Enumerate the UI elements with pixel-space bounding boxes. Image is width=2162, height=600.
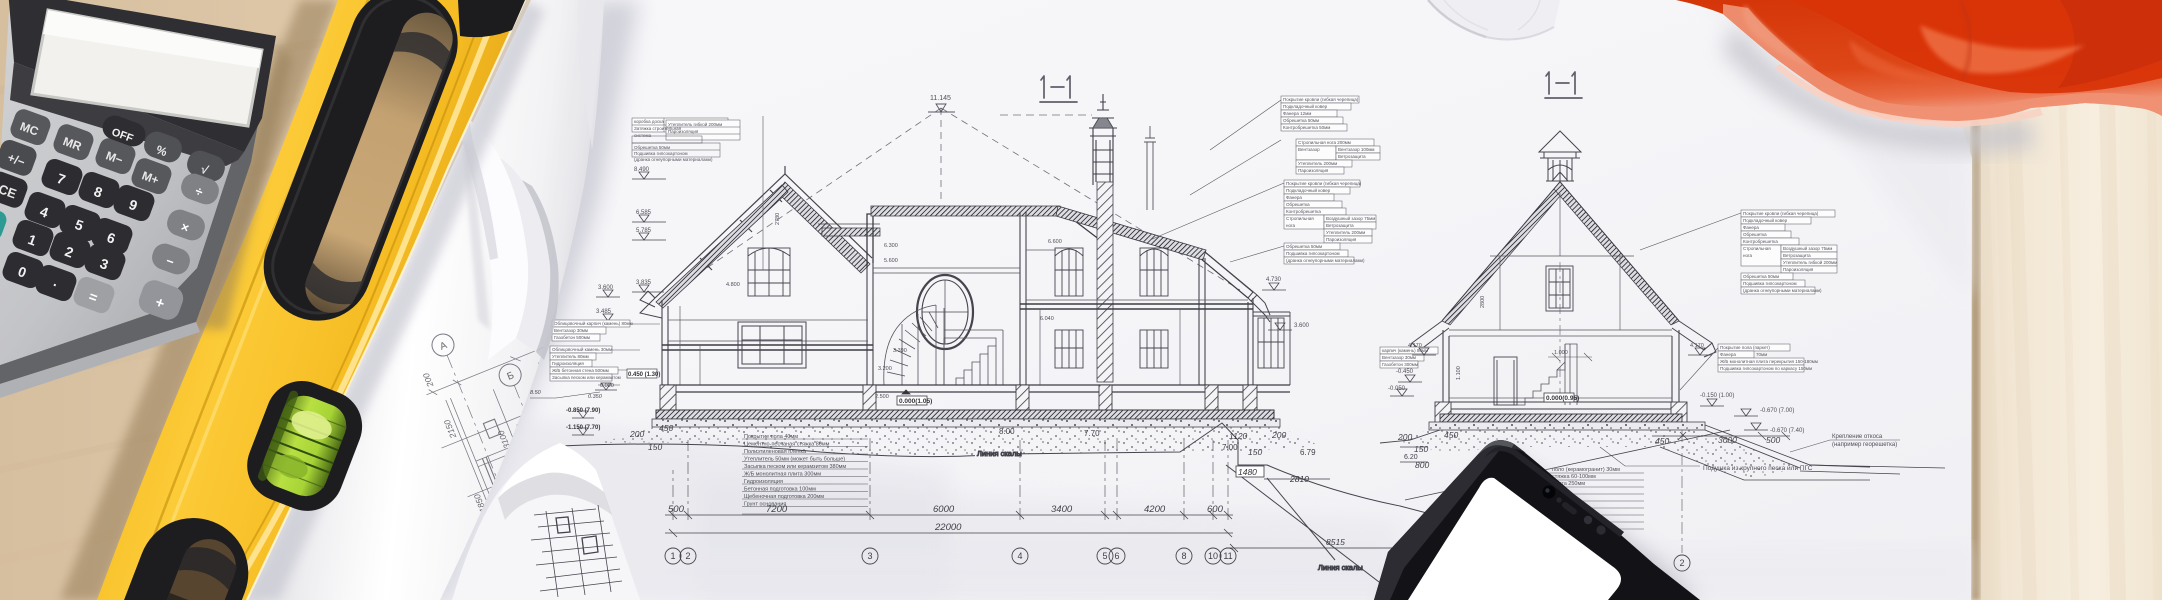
svg-text:коробка доска: коробка доска xyxy=(634,119,664,124)
svg-text:4.800: 4.800 xyxy=(726,282,740,288)
svg-text:10: 10 xyxy=(1208,551,1218,561)
svg-text:Фанера: Фанера xyxy=(1720,352,1736,357)
svg-text:Стропильная: Стропильная xyxy=(1743,246,1771,251)
svg-text:1480: 1480 xyxy=(1238,467,1257,477)
svg-text:500: 500 xyxy=(1766,435,1780,445)
svg-text:7.00: 7.00 xyxy=(1222,443,1238,452)
svg-text:Обрешетка: Обрешетка xyxy=(1743,232,1767,237)
svg-text:Утеплитель гибкой 200мм: Утеплитель гибкой 200мм xyxy=(668,121,722,127)
svg-text:8: 8 xyxy=(1181,551,1186,561)
svg-text:Подушка из крупного песка или: Подушка из крупного песка или ПГС xyxy=(1703,465,1813,472)
svg-text:Бетонная подготовка 100мм: Бетонная подготовка 100мм xyxy=(744,487,816,493)
svg-text:Воздушный зазор 75мм: Воздушный зазор 75мм xyxy=(1326,215,1375,221)
svg-text:Обрешетка: Обрешетка xyxy=(1286,202,1310,207)
svg-text:Цементно-песчаная стяжка 80мм: Цементно-песчаная стяжка 80мм xyxy=(744,442,830,448)
svg-text:стяжка 60-100мм: стяжка 60-100мм xyxy=(1552,474,1596,480)
svg-text:8.490: 8.490 xyxy=(634,167,650,173)
svg-text:Вентзазор 100мм: Вентзазор 100мм xyxy=(1338,147,1375,152)
svg-text:500: 500 xyxy=(668,504,685,515)
svg-text:Утеплитель 80мм: Утеплитель 80мм xyxy=(552,354,589,359)
svg-text:0.000(0.95): 0.000(0.95) xyxy=(1546,395,1579,402)
svg-text:Покрытие пола (паркет): Покрытие пола (паркет) xyxy=(1720,345,1770,350)
svg-text:6000: 6000 xyxy=(933,504,955,515)
svg-text:Щебеночная подготовка 200мм: Щебеночная подготовка 200мм xyxy=(744,494,824,500)
svg-text:1: 1 xyxy=(670,551,675,561)
svg-text:Покрытие кровли (гибкая черепи: Покрытие кровли (гибкая черепица) xyxy=(1283,97,1359,102)
svg-text:3: 3 xyxy=(867,551,872,561)
svg-text:Ж/Б монолитная плита перекрыти: Ж/Б монолитная плита перекрытия 150-180м… xyxy=(1720,359,1818,364)
svg-text:11: 11 xyxy=(1223,551,1232,561)
svg-text:Пароизоляция: Пароизоляция xyxy=(1298,168,1329,173)
svg-text:Вентзазор 30мм: Вентзазор 30мм xyxy=(1382,355,1416,360)
svg-text:(например георешетка): (например георешетка) xyxy=(1832,442,1897,448)
svg-text:Фанера 12мм: Фанера 12мм xyxy=(1283,111,1311,116)
svg-text:0.000(1.05): 0.000(1.05) xyxy=(899,398,932,405)
svg-text:Подкладочный ковер: Подкладочный ковер xyxy=(1743,217,1788,223)
svg-text:22000: 22000 xyxy=(934,522,962,533)
svg-text:3.390: 3.390 xyxy=(893,348,907,354)
svg-text:Обрешетка 50мм: Обрешетка 50мм xyxy=(1286,244,1322,249)
svg-text:1.100: 1.100 xyxy=(1456,366,1462,380)
svg-text:Подкладочный ковер: Подкладочный ковер xyxy=(1283,103,1328,109)
svg-text:Облицовочный камень 30мм: Облицовочный камень 30мм xyxy=(552,346,612,352)
svg-text:1120: 1120 xyxy=(1229,431,1248,441)
svg-text:150: 150 xyxy=(1248,447,1262,457)
svg-text:нога: нога xyxy=(1286,223,1296,228)
svg-text:5: 5 xyxy=(1102,551,1107,561)
svg-text:11.145: 11.145 xyxy=(930,95,951,102)
svg-text:3.600: 3.600 xyxy=(598,285,614,291)
svg-text:2780: 2780 xyxy=(775,213,781,225)
svg-text:600: 600 xyxy=(1207,504,1224,515)
svg-text:Засыпка песком или керамзитом: Засыпка песком или керамзитом xyxy=(552,375,621,380)
svg-text:Подшивка гипсокартоном: Подшивка гипсокартоном xyxy=(1286,251,1340,256)
svg-text:Пароизоляция: Пароизоляция xyxy=(668,129,699,134)
svg-text:Ветрозащита: Ветрозащита xyxy=(1783,253,1811,258)
svg-text:-0.150 (1.00): -0.150 (1.00) xyxy=(1700,393,1734,399)
svg-text:Гидроизоляция: Гидроизоляция xyxy=(552,361,584,366)
svg-text:2: 2 xyxy=(685,551,690,561)
svg-text:Ж/Б монолитная плита 300мм: Ж/Б монолитная плита 300мм xyxy=(744,472,821,478)
svg-text:Вентзазор: Вентзазор xyxy=(1298,147,1320,152)
svg-text:Контробрешетка: Контробрешетка xyxy=(1743,239,1778,244)
svg-text:Пароизоляция: Пароизоляция xyxy=(1326,237,1357,242)
svg-text:2: 2 xyxy=(1679,558,1684,568)
svg-text:4.170: 4.170 xyxy=(1408,343,1422,349)
svg-text:Ветрозащита: Ветрозащита xyxy=(1326,223,1354,228)
svg-text:6.600: 6.600 xyxy=(1048,239,1062,245)
svg-text:Подкладочный ковер: Подкладочный ковер xyxy=(1286,187,1331,193)
svg-text:2.500: 2.500 xyxy=(875,394,889,400)
svg-text:3.600: 3.600 xyxy=(1294,323,1310,329)
svg-text:0.000: 0.000 xyxy=(600,383,614,389)
svg-text:7.70: 7.70 xyxy=(1084,429,1100,438)
svg-text:3.200: 3.200 xyxy=(878,366,892,372)
svg-text:Покрытие кровли (гибкая черепи: Покрытие кровли (гибкая черепица) xyxy=(1286,181,1362,186)
svg-text:Утеплитель 200мм: Утеплитель 200мм xyxy=(1298,161,1337,166)
svg-text:1.000: 1.000 xyxy=(1554,350,1568,356)
svg-text:6.040: 6.040 xyxy=(1040,316,1054,322)
svg-text:3000: 3000 xyxy=(1718,435,1737,445)
svg-text:Покрытие кровли (гибкая черепи: Покрытие кровли (гибкая черепица) xyxy=(1743,211,1819,216)
svg-text:0.350: 0.350 xyxy=(588,394,603,400)
svg-text:6: 6 xyxy=(1114,551,1119,561)
svg-text:4.170: 4.170 xyxy=(1690,343,1704,349)
svg-text:Контробрешетка: Контробрешетка xyxy=(1286,209,1321,214)
svg-text:200: 200 xyxy=(1271,430,1286,440)
svg-text:Утеплитель гибкой 200мм: Утеплитель гибкой 200мм xyxy=(1783,259,1837,265)
svg-text:Ветрозащита: Ветрозащита xyxy=(1338,154,1366,159)
svg-text:150: 150 xyxy=(1414,444,1428,454)
svg-text:Засыпка песком или керамзитом: Засыпка песком или керамзитом 380мм xyxy=(744,464,846,470)
svg-text:450: 450 xyxy=(659,423,673,433)
svg-text:200: 200 xyxy=(1397,432,1412,442)
svg-text:нога: нога xyxy=(1743,253,1753,258)
svg-text:8.00: 8.00 xyxy=(999,427,1015,436)
svg-text:-0.670 (7.40): -0.670 (7.40) xyxy=(1770,428,1804,434)
svg-text:Подшивка гипсокартоном по карк: Подшивка гипсокартоном по каркасу 150мм xyxy=(1720,366,1812,371)
svg-text:(дранка огнеупорными материала: (дранка огнеупорными материалами) xyxy=(634,157,713,162)
svg-text:Утеплитель 200мм: Утеплитель 200мм xyxy=(1326,230,1365,235)
svg-text:70мм: 70мм xyxy=(1756,352,1767,357)
svg-text:Гидроизоляция: Гидроизоляция xyxy=(744,479,783,485)
svg-text:Обрешетка 50мм: Обрешетка 50мм xyxy=(1283,118,1319,123)
svg-text:система: система xyxy=(634,133,652,138)
svg-text:3.485: 3.485 xyxy=(596,309,612,315)
svg-text:-0.670 (7.00): -0.670 (7.00) xyxy=(1760,408,1794,414)
svg-text:Ж/Б бетонная стена 500мм: Ж/Б бетонная стена 500мм xyxy=(552,368,609,373)
svg-text:Фанера: Фанера xyxy=(1286,195,1302,200)
svg-text:450: 450 xyxy=(1444,430,1458,440)
svg-text:Крепление откоса: Крепление откоса xyxy=(1832,434,1883,440)
svg-text:-0.450: -0.450 xyxy=(1396,369,1414,375)
svg-text:Подшивка гипсокартоном: Подшивка гипсокартоном xyxy=(1743,281,1797,286)
svg-text:(дранка огнеупорными материала: (дранка огнеупорными материалами) xyxy=(1743,288,1822,293)
svg-text:Пароизоляция: Пароизоляция xyxy=(1783,267,1814,272)
svg-text:800: 800 xyxy=(1415,460,1429,470)
svg-text:Газобетон 500мм: Газобетон 500мм xyxy=(554,335,590,340)
svg-text:4200: 4200 xyxy=(1144,504,1166,515)
svg-text:Фанера: Фанера xyxy=(1743,225,1759,230)
svg-text:6.20: 6.20 xyxy=(1404,454,1418,461)
svg-text:Стропильная нога 200мм: Стропильная нога 200мм xyxy=(1298,140,1351,145)
svg-text:Линия скалы: Линия скалы xyxy=(1318,563,1363,572)
svg-text:2800: 2800 xyxy=(1480,296,1486,308)
svg-text:5.785: 5.785 xyxy=(636,228,652,234)
svg-text:Контробрешетка 50мм: Контробрешетка 50мм xyxy=(1283,125,1330,130)
svg-text:-0.050: -0.050 xyxy=(1388,386,1406,392)
svg-text:Облицовочный карпич (камень) 8: Облицовочный карпич (камень) 80мм xyxy=(554,320,633,326)
svg-text:6.585: 6.585 xyxy=(636,210,652,216)
svg-text:3400: 3400 xyxy=(1051,504,1073,515)
svg-text:Покрытие пола 40мм: Покрытие пола 40мм xyxy=(744,434,798,440)
svg-text:200: 200 xyxy=(629,429,644,439)
svg-text:7200: 7200 xyxy=(766,504,788,515)
svg-text:Полиэтиленовая пленка: Полиэтиленовая пленка xyxy=(744,449,807,455)
svg-text:8515: 8515 xyxy=(1326,537,1345,547)
svg-text:поло (керамогранит) 30мм: поло (керамогранит) 30мм xyxy=(1552,467,1620,473)
svg-text:3.835: 3.835 xyxy=(636,280,652,286)
svg-text:4.730: 4.730 xyxy=(1266,277,1282,283)
svg-text:6.79: 6.79 xyxy=(1300,448,1316,457)
svg-text:Обрешетка 50мм: Обрешетка 50мм xyxy=(1743,274,1779,279)
svg-text:(дранка огнеупорными материала: (дранка огнеупорными материалами) xyxy=(1286,258,1365,263)
svg-text:Вентзазор 30мм: Вентзазор 30мм xyxy=(554,328,588,333)
svg-text:Стропильная: Стропильная xyxy=(1286,216,1314,221)
svg-text:5.600: 5.600 xyxy=(884,258,898,264)
svg-text:Утеплитель 50мм (может быть бо: Утеплитель 50мм (может быть больше) xyxy=(744,457,845,463)
svg-text:Воздушный зазор 75мм: Воздушный зазор 75мм xyxy=(1783,245,1832,251)
svg-text:150: 150 xyxy=(648,442,662,452)
svg-text:Подшивка гипсокартоном: Подшивка гипсокартоном xyxy=(634,151,688,156)
svg-text:4: 4 xyxy=(1017,551,1022,561)
svg-text:8.50: 8.50 xyxy=(530,390,542,396)
svg-text:0.450 (1.30): 0.450 (1.30) xyxy=(628,372,660,378)
svg-text:6.300: 6.300 xyxy=(884,243,898,249)
svg-text:Газобетон 300мм: Газобетон 300мм xyxy=(1382,362,1418,367)
svg-text:Обрешетка 50мм: Обрешетка 50мм xyxy=(634,145,670,150)
